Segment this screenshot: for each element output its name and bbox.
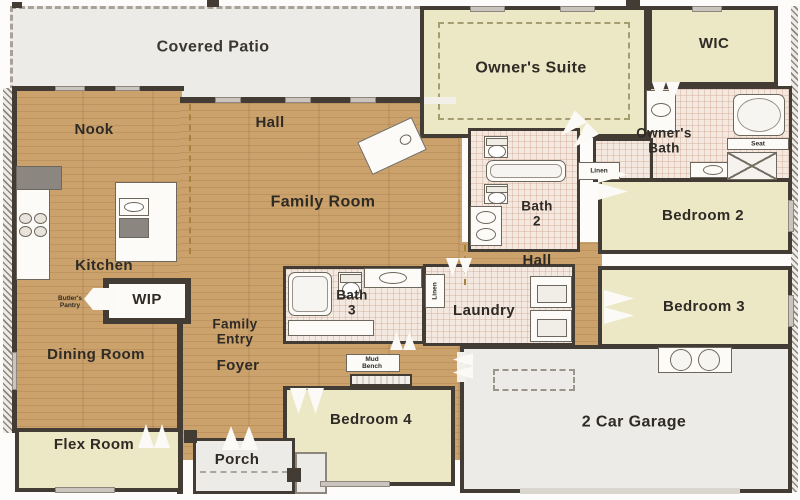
window-bedroom4 — [320, 481, 390, 487]
bath2-toilet-b — [484, 184, 508, 204]
window-patio-3 — [350, 97, 376, 103]
dimension-tick-2 — [207, 0, 219, 7]
washer — [530, 276, 572, 308]
porch-dashed-line — [200, 471, 288, 473]
room-wic — [648, 6, 778, 86]
patio-slider-opening — [424, 97, 456, 104]
mud-bench-seat — [350, 374, 412, 386]
island-sink — [119, 198, 149, 216]
dryer — [530, 310, 572, 342]
window-patio-2 — [285, 97, 311, 103]
wall-nook-top — [12, 86, 184, 91]
bath3-sink-counter — [364, 268, 422, 288]
window-flex — [55, 487, 115, 493]
bath3-sink — [379, 272, 407, 284]
ceiling-tray-dashed — [438, 22, 630, 120]
window-bedroom3 — [788, 295, 794, 327]
room-garage — [460, 345, 792, 493]
obath-garden-tub — [733, 94, 785, 136]
break-nook-family — [189, 104, 191, 254]
fireplace-firebox — [398, 133, 413, 147]
obath-shower — [727, 152, 777, 180]
room-bedroom-2 — [598, 178, 792, 254]
window-dining — [12, 352, 17, 390]
cooktop — [18, 212, 48, 238]
bath2-sink-1 — [476, 211, 496, 224]
bath3-vanity-strip — [288, 320, 374, 336]
laundry-linen-closet — [425, 274, 445, 308]
window-nook-1 — [55, 86, 85, 91]
bath3-toilet — [338, 272, 362, 298]
garage-door-opening — [520, 488, 740, 494]
bath2-toilet-a — [484, 136, 508, 158]
room-owners-suite — [420, 6, 648, 138]
dishwasher — [119, 218, 149, 238]
window-suite-2 — [560, 6, 595, 12]
window-nook-2 — [115, 86, 140, 91]
floor-plan-canvas: Covered Patio Nook Hall Owner's Suite WI… — [0, 0, 800, 500]
window-wic — [692, 6, 722, 12]
porch-column-right — [287, 468, 301, 482]
room-bedroom-3 — [598, 266, 792, 348]
hatch-exterior-right — [791, 6, 798, 492]
window-patio-1 — [215, 97, 241, 103]
window-bedroom2 — [788, 200, 794, 232]
mud-bench — [346, 354, 400, 372]
water-heater-pair — [658, 347, 732, 373]
garage-attic-access — [493, 369, 575, 391]
obath-shower-seat — [727, 138, 789, 150]
bath2-sink-2 — [476, 228, 496, 241]
refrigerator — [16, 166, 62, 190]
obath-sink-a — [651, 103, 671, 117]
room-flex — [15, 428, 182, 492]
bath3-tub — [288, 272, 332, 316]
obath-sink-b — [703, 165, 723, 175]
sink-basin — [124, 202, 144, 212]
dimension-tick-1 — [12, 2, 22, 8]
bath2-vanity — [470, 206, 502, 246]
bath2-tub — [486, 160, 566, 182]
window-suite-1 — [470, 6, 505, 12]
porch-column-left — [184, 430, 197, 443]
hatch-exterior-left — [3, 88, 12, 433]
room-wip-pantry — [103, 278, 191, 324]
